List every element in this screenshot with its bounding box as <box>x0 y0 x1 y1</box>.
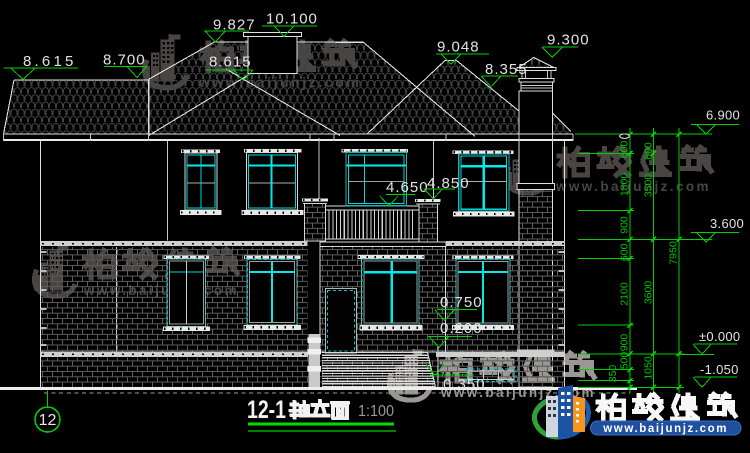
svg-text:10.100: 10.100 <box>266 11 318 28</box>
svg-text:www.baijunjz.com: www.baijunjz.com <box>555 179 711 194</box>
svg-text:2100: 2100 <box>619 282 631 306</box>
svg-text:600: 600 <box>619 243 631 261</box>
svg-text:8.355: 8.355 <box>485 61 528 78</box>
svg-text:350: 350 <box>607 365 619 383</box>
svg-text:3.600: 3.600 <box>710 216 744 231</box>
svg-text:12-1: 12-1 <box>247 396 286 424</box>
svg-text:0.350: 0.350 <box>443 376 486 393</box>
svg-text:1:100: 1:100 <box>358 403 394 420</box>
svg-text:-1.050: -1.050 <box>700 362 739 377</box>
svg-text:±0.000: ±0.000 <box>699 329 740 344</box>
svg-text:8.615: 8.615 <box>23 53 77 70</box>
svg-text:0.200: 0.200 <box>440 320 483 337</box>
svg-text:3500: 3500 <box>642 174 654 198</box>
svg-text:1800: 1800 <box>619 173 631 197</box>
svg-text:600: 600 <box>642 142 654 160</box>
svg-text:6.900: 6.900 <box>706 108 740 123</box>
svg-text:7950: 7950 <box>668 241 680 265</box>
svg-text:600: 600 <box>619 140 631 158</box>
svg-text:8.615: 8.615 <box>209 54 252 71</box>
svg-text:www.baijunjz.com: www.baijunjz.com <box>602 423 728 435</box>
svg-text:9.300: 9.300 <box>547 32 590 49</box>
svg-text:500: 500 <box>619 352 631 370</box>
svg-text:3600: 3600 <box>642 281 654 305</box>
svg-text:0.750: 0.750 <box>440 294 483 311</box>
svg-text:900: 900 <box>619 216 631 234</box>
svg-text:9.048: 9.048 <box>437 39 480 56</box>
svg-text:4.850: 4.850 <box>427 175 470 192</box>
svg-text:4.650: 4.650 <box>386 179 429 196</box>
svg-text:12: 12 <box>39 412 57 429</box>
svg-text:1050: 1050 <box>642 356 654 380</box>
svg-text:900: 900 <box>619 334 631 352</box>
